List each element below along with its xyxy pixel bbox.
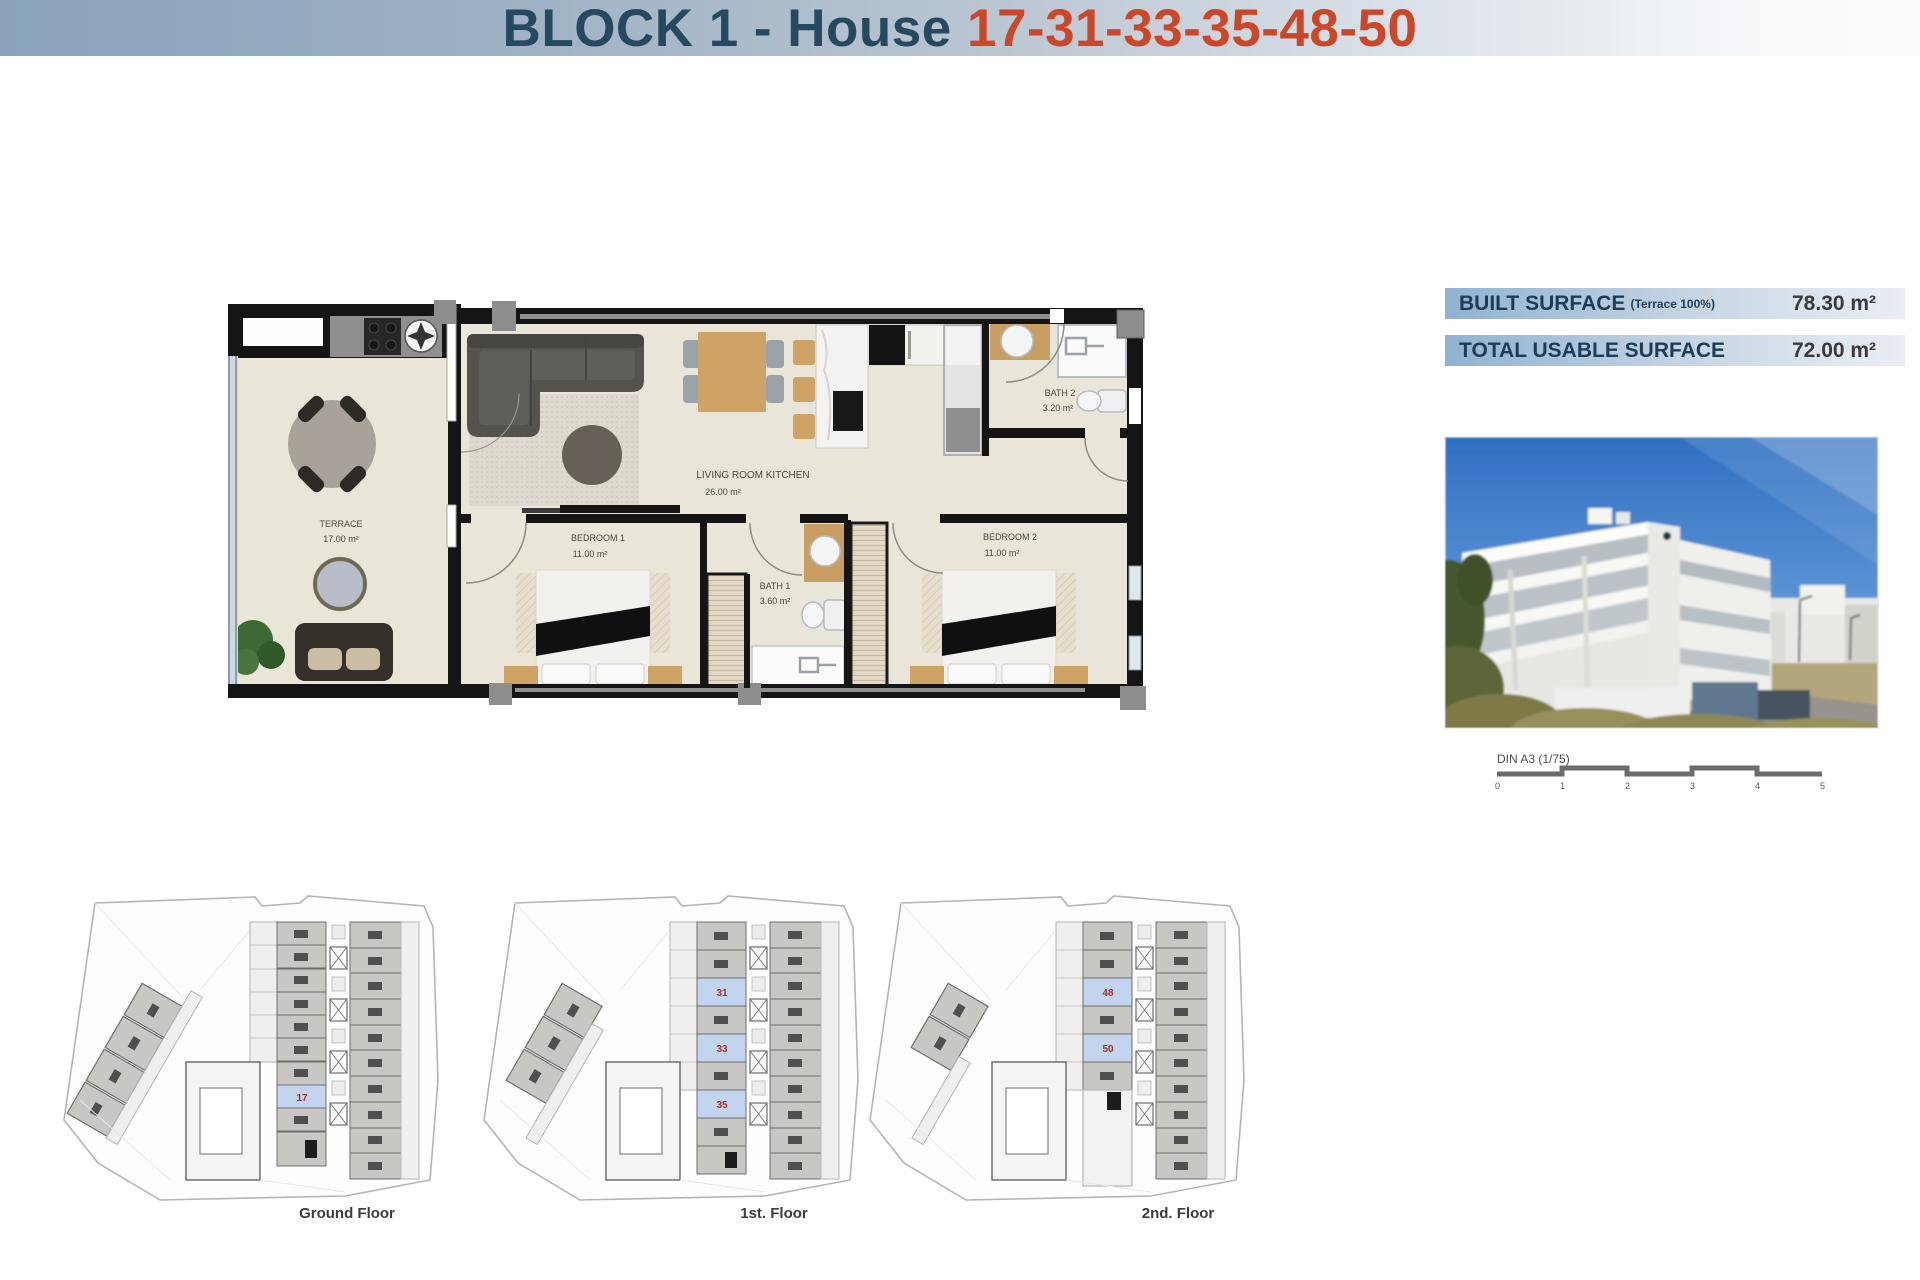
svg-text:3.20 m²: 3.20 m²	[1043, 403, 1074, 413]
svg-text:50: 50	[1102, 1044, 1114, 1055]
svg-text:26.00 m²: 26.00 m²	[705, 487, 741, 497]
svg-text:BATH 1: BATH 1	[760, 581, 791, 591]
svg-text:2nd. Floor: 2nd. Floor	[1142, 1205, 1215, 1222]
svg-text:Ground Floor: Ground Floor	[299, 1205, 395, 1222]
svg-text:BATH 2: BATH 2	[1045, 388, 1076, 398]
svg-text:5: 5	[1820, 781, 1825, 791]
svg-text:11.00 m²: 11.00 m²	[985, 548, 1020, 558]
svg-text:3: 3	[1690, 781, 1695, 791]
svg-text:48: 48	[1102, 988, 1114, 999]
svg-text:1: 1	[1560, 781, 1565, 791]
svg-text:2: 2	[1625, 781, 1630, 791]
svg-text:4: 4	[1755, 781, 1760, 791]
svg-text:TERRACE: TERRACE	[319, 519, 362, 529]
svg-text:LIVING ROOM KITCHEN: LIVING ROOM KITCHEN	[696, 470, 809, 481]
svg-text:BEDROOM 1: BEDROOM 1	[571, 533, 625, 543]
svg-text:BEDROOM 2: BEDROOM 2	[983, 532, 1037, 542]
svg-text:0: 0	[1495, 781, 1500, 791]
svg-text:DIN A3 (1/75): DIN A3 (1/75)	[1497, 752, 1570, 766]
svg-text:17.00 m²: 17.00 m²	[323, 534, 359, 544]
svg-text:31: 31	[716, 988, 728, 999]
svg-text:33: 33	[716, 1044, 728, 1055]
svg-text:35: 35	[716, 1100, 728, 1111]
svg-text:17: 17	[296, 1093, 308, 1104]
svg-text:1st. Floor: 1st. Floor	[740, 1205, 808, 1222]
svg-text:3.60 m²: 3.60 m²	[760, 596, 791, 606]
svg-text:11.00 m²: 11.00 m²	[573, 549, 608, 559]
